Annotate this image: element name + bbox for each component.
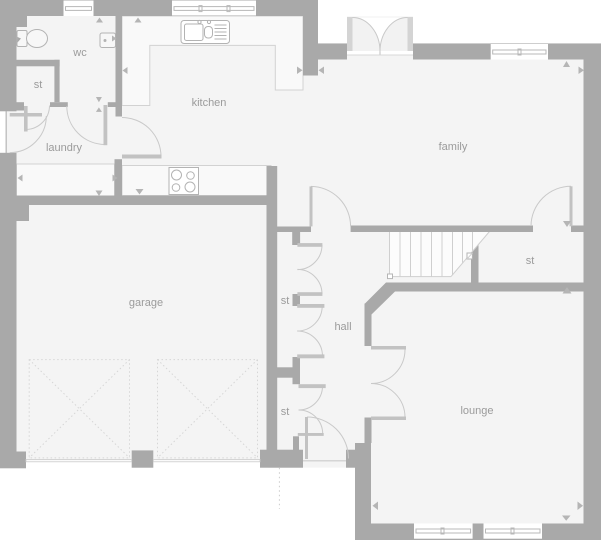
svg-text:lounge: lounge	[460, 405, 493, 417]
svg-text:wc: wc	[72, 47, 87, 59]
svg-text:st: st	[281, 295, 290, 307]
svg-text:family: family	[439, 141, 468, 153]
svg-text:st: st	[34, 79, 43, 91]
svg-text:garage: garage	[129, 297, 163, 309]
svg-text:st: st	[281, 406, 290, 418]
svg-text:hall: hall	[334, 321, 351, 333]
svg-text:laundry: laundry	[46, 142, 83, 154]
svg-text:st: st	[526, 255, 535, 267]
svg-text:kitchen: kitchen	[192, 97, 227, 109]
